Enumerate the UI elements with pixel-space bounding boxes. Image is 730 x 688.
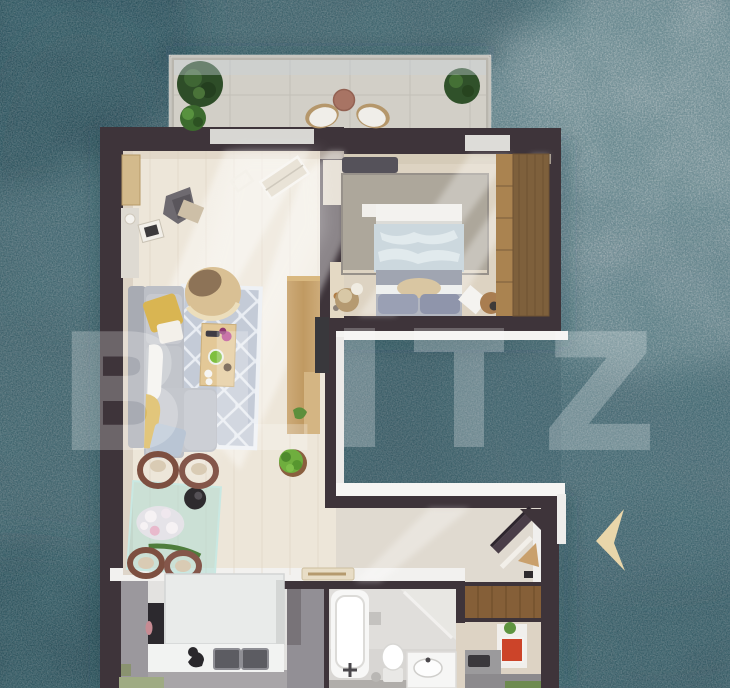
svg-text:B: B — [65, 301, 181, 481]
svg-text:L: L — [210, 301, 308, 481]
svg-text:Z: Z — [548, 300, 650, 480]
